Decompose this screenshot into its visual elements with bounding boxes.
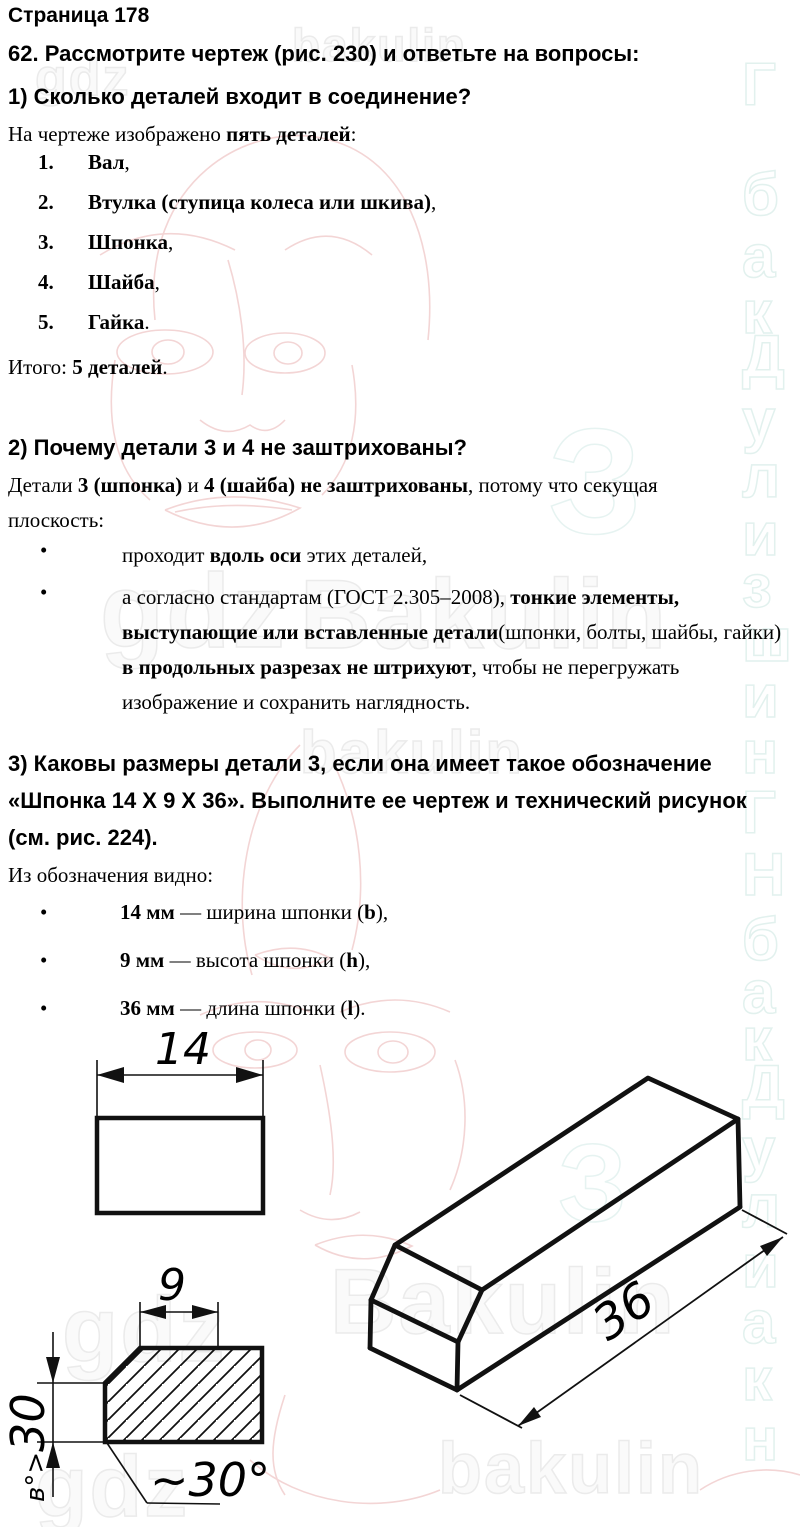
bullet-item: 14 мм — ширина шпонки (b), <box>120 900 388 925</box>
page-header: Страница 178 <box>8 4 149 28</box>
s3-intro: Из обозначения видно: <box>8 858 213 893</box>
list-number: 2. <box>38 190 54 215</box>
list-number: 3. <box>38 230 54 255</box>
s1-intro: На чертеже изображено пять деталей: <box>8 117 768 152</box>
bullet-dot: • <box>40 948 47 973</box>
front-view-drawing: 14 <box>60 1020 290 1235</box>
bullet-item: 36 мм — длина шпонки (l). <box>120 996 366 1021</box>
page-root: gdz bakulin gdz Bakulin bakulin З gdz Ba… <box>0 0 800 1527</box>
subquestion-1-heading: 1) Сколько деталей входит в соединение? <box>8 79 788 115</box>
bullet-item: а согласно стандартам (ГОСТ 2.305–2008),… <box>122 580 786 720</box>
section-height-dimension-label: в°>30 <box>1 1393 55 1502</box>
chamfer-angle-label: ~30° <box>150 1453 270 1507</box>
list-item: Шайба, <box>88 270 160 295</box>
bullet-dot: • <box>40 900 47 925</box>
bullet-item: проходит вдоль оси этих деталей, <box>122 538 782 573</box>
bullet-dot: • <box>40 538 47 563</box>
isometric-drawing: 36 <box>340 1040 800 1450</box>
key-section-shape <box>105 1348 262 1442</box>
subquestion-2-heading: 2) Почему детали 3 и 4 не заштрихованы? <box>8 430 788 466</box>
bullet-dot: • <box>40 580 47 605</box>
section-width-dimension-label: 9 <box>158 1260 186 1311</box>
list-item: Гайка. <box>88 310 150 335</box>
list-item: Вал, <box>88 150 130 175</box>
s1-total: Итого: 5 деталей. <box>8 350 168 385</box>
bullet-dot: • <box>40 996 47 1021</box>
section-view-drawing: 9 в°>30 ~30° <box>0 1240 292 1527</box>
s2-paragraph: Детали 3 (шпонка) и 4 (шайба) не заштрих… <box>8 468 698 538</box>
list-item: Втулка (ступица колеса или шкива), <box>88 190 436 215</box>
length-dimension-label: 36 <box>583 1271 665 1352</box>
list-number: 4. <box>38 270 54 295</box>
strip-letter: б <box>742 160 779 229</box>
width-dimension-label: 14 <box>155 1024 211 1075</box>
subquestion-3-heading: 3) Каковы размеры детали 3, если она име… <box>8 745 788 856</box>
question-heading: 62. Рассмотрите чертеж (рис. 230) и отве… <box>8 36 788 72</box>
list-number: 1. <box>38 150 54 175</box>
list-number: 5. <box>38 310 54 335</box>
list-item: Шпонка, <box>88 230 173 255</box>
strip-letter: Д <box>742 322 785 391</box>
bullet-item: 9 мм — высота шпонки (h), <box>120 948 370 973</box>
